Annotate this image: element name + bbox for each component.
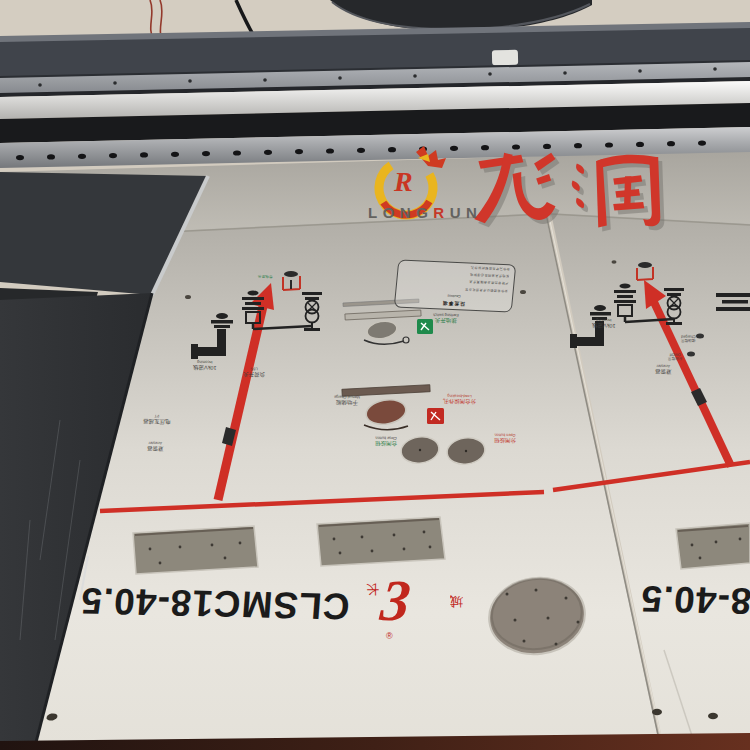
pilot-hole xyxy=(185,295,191,299)
pilot-hole xyxy=(520,290,526,294)
label-incoming: 10kV进线Incoming xyxy=(193,360,217,371)
mount-hole xyxy=(708,713,718,719)
caution-box: 注意事项 Cautions 操作前请确认开关所处位置 严禁带负荷分合隔离开关 接… xyxy=(394,260,516,313)
load-break-plate xyxy=(427,408,444,424)
label-manual-charge: 手动储能Manual Charge xyxy=(334,395,360,406)
beam-tab xyxy=(492,50,518,66)
label-incoming-right: 10kV进线Incoming xyxy=(592,318,616,329)
brand-registered-mark: ® xyxy=(386,631,393,641)
label-arrester-right: 避雷器Arrester xyxy=(655,364,672,375)
watermark-longrun-text: LONGRUN xyxy=(368,204,482,221)
brand-logo-char-b: 城 xyxy=(450,595,463,608)
label-voltage-display: 带电显示 xyxy=(258,274,272,279)
brand-logo-char-a: 长 xyxy=(366,583,379,596)
photo-flatbed-printer-scene: 带电显示 10kV进线Incoming 电压互感器PT 避雷器Arrester … xyxy=(0,0,750,750)
mount-hole xyxy=(652,709,662,715)
label-charged-right: 储能指示Charged xyxy=(681,334,696,343)
earthing-switch-plate xyxy=(417,319,433,334)
label-onoff-right: 分合指示On/Off xyxy=(668,352,683,361)
label-earthing-switch: 接地开关Earthing switch xyxy=(433,313,459,324)
scene-art xyxy=(0,0,750,750)
label-lbs: 负荷开关LBS xyxy=(243,367,265,378)
label-pt: 电压互感器PT xyxy=(143,414,171,425)
model-number-right: CLSMC18-40.5 xyxy=(608,576,750,625)
model-number-left: CLSMC18-40.5 xyxy=(48,578,381,627)
label-arrester: 避雷器Arrester xyxy=(147,441,164,452)
brand-logo-glyph: 3 xyxy=(378,572,413,630)
label-load-break: 分合闸操作孔Load-breaking xyxy=(443,394,476,405)
label-open-button: 分闸按钮Open button xyxy=(494,433,516,444)
label-close-button: 合闸按钮Close button xyxy=(375,436,397,447)
gantry-beam xyxy=(0,22,750,168)
watermark-r-monogram: R xyxy=(394,166,413,198)
